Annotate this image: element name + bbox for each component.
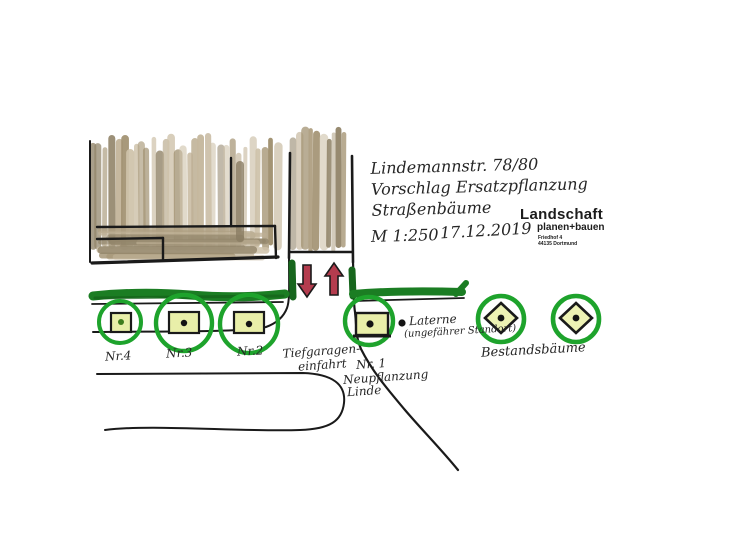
- label-tree-nr1-note2: Linde: [347, 383, 382, 399]
- logo-subtitle: planen+bauen: [537, 222, 605, 233]
- site-plan-page: Lindemannstr. 78/80 Vorschlag Ersatzpfla…: [0, 0, 747, 560]
- tree-nr4: [99, 301, 141, 343]
- site-plan-drawing: [0, 0, 747, 560]
- logo-address: Friedhof 4 44135 Dortmund: [538, 235, 605, 247]
- label-tree-nr2: Nr.2: [237, 343, 264, 358]
- label-tree-nr4: Nr.4: [105, 348, 132, 363]
- label-garage: Tiefgaragen- einfahrt: [282, 341, 361, 374]
- tree-nr1: [345, 297, 393, 345]
- green-strip: [93, 263, 466, 298]
- arrow-down-icon: [298, 265, 316, 297]
- lantern-dot: [398, 319, 405, 326]
- logo-name: Landschaft: [520, 206, 605, 223]
- label-tree-nr3: Nr.3: [166, 345, 193, 360]
- scale-note: M 1:250: [371, 225, 439, 246]
- arrow-up-icon: [325, 263, 343, 295]
- parking-bay-outline: [97, 373, 344, 430]
- office-logo: Landschaft planen+bauen Friedhof 4 44135…: [520, 206, 605, 247]
- existing-tree-2: [553, 296, 599, 342]
